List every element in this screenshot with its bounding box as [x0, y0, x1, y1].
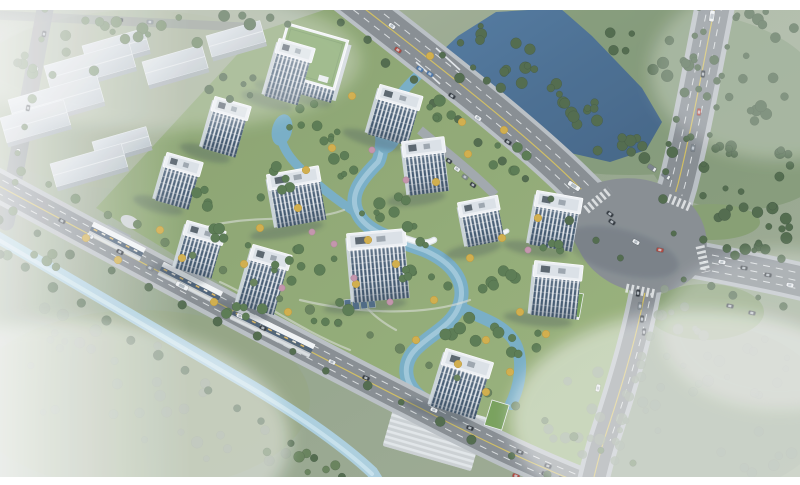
- bottom-margin: [0, 477, 800, 485]
- masterplan-aerial-rendering: [0, 0, 800, 485]
- aerial-render-viewport: [0, 0, 800, 485]
- top-margin: [0, 0, 800, 10]
- haze-overlay: [0, 0, 800, 485]
